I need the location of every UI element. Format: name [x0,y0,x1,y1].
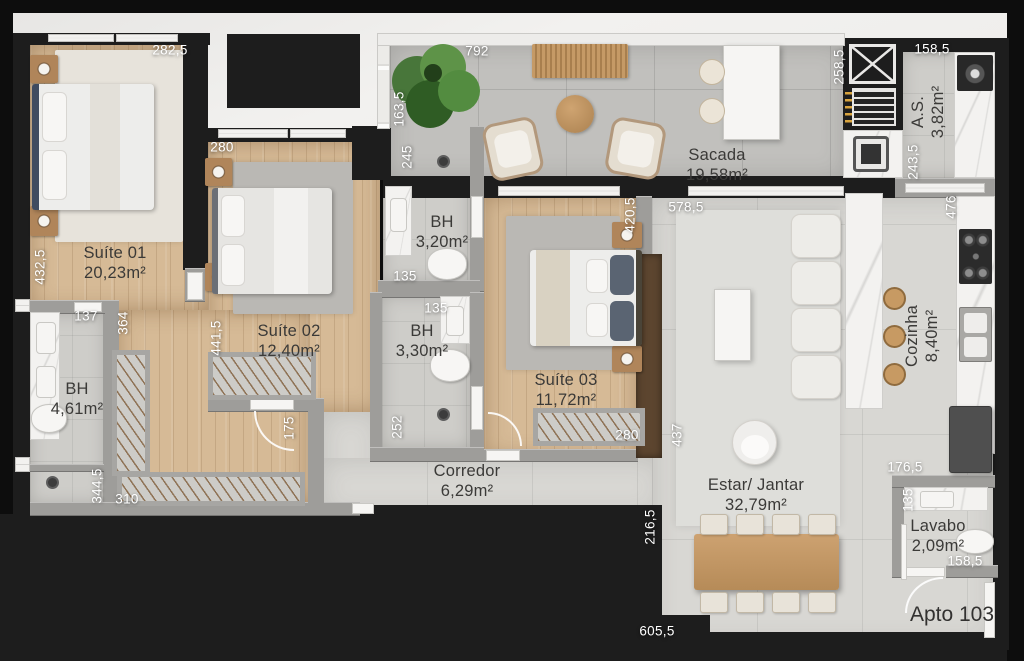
room-name: A.S. [908,86,928,139]
room-label-suite-03: Suíte 03 11,72m² [534,370,597,410]
sofa-cushion [791,308,841,352]
dimension-label: 158,5 [914,42,949,57]
dimension-label: 163,5 [392,91,407,126]
blanket [274,188,308,294]
room-name: BH [416,212,469,232]
sink-icon [446,306,464,336]
dining-chair-icon [772,592,800,613]
wall-corridor-bottom [357,505,634,516]
sofa-cushion [791,214,841,258]
dimension-label: 364 [116,311,131,334]
nightstand-icon [30,206,58,236]
blanket [536,250,570,346]
door-leaf-lavabo [901,524,907,580]
room-name: Corredor [434,461,501,481]
bed-icon-suite01 [32,84,154,210]
bed-icon-suite02 [212,188,332,294]
bed-icon-suite03 [530,250,642,346]
pillow [221,195,245,237]
door-sill-suite01 [187,272,203,300]
nightstand-icon [612,346,642,372]
sofa-icon [791,214,845,404]
fridge-icon [949,406,992,473]
dimension-label: 137 [74,309,97,324]
wall-bottom-right [662,632,1007,661]
chair-seat [741,435,769,459]
room-area: 32,79m² [708,495,804,515]
room-name: Cozinha [902,305,922,367]
dining-chair-icon [700,514,728,535]
balcony-railing-left [377,45,390,129]
nightstand-icon [205,158,232,186]
wall-corridor-left [308,398,324,516]
headboard [636,250,642,346]
grill-icon [852,88,896,126]
pillow [42,150,67,200]
room-area: 3,30m² [396,341,449,361]
armchair-cushion [616,129,655,168]
dimension-label: 135 [393,269,416,284]
toilet-icon [427,248,467,280]
sink-basin [964,313,987,333]
room-name: Suíte 01 [83,243,146,263]
dimension-label: 135 [901,488,916,511]
dimension-label: 243,5 [906,144,921,179]
dining-chair-icon [808,514,836,535]
shower-head-icon [437,408,450,421]
washer-icon [957,55,993,91]
armchair-icon [481,115,546,183]
pillow [221,244,245,286]
dimension-label: 280 [210,140,233,155]
grill-skewers-icon [845,92,852,124]
dimension-label: 258,5 [832,49,847,84]
dimension-label: 216,5 [643,509,658,544]
wardrobe-icon [112,350,150,476]
dimension-label: 578,5 [668,200,703,215]
round-table-icon [556,95,594,133]
room-name: BH [396,321,449,341]
sliding-door-suite03 [498,186,620,196]
wall-right-exterior [993,38,1009,650]
dining-chair-icon [772,514,800,535]
nightstand-icon [30,55,58,83]
dimension-label: 245 [400,145,415,168]
room-label-as: A.S. 3,82m² [908,86,948,139]
dimension-label: 280 [615,428,638,443]
room-area: 3,20m² [416,232,469,252]
door-sill-bh320 [471,196,483,238]
room-name: Sacada [686,145,748,165]
window-suite01-a [48,34,114,42]
bar-sink-icon [853,136,889,172]
wall-bottom-left-mass [0,514,662,661]
wall-bh330-bottom [370,447,484,462]
door-sill-suite02 [250,399,294,410]
dimension-label: 158,5 [947,554,982,569]
window-suite02-a [218,129,288,138]
dining-chair-icon [736,514,764,535]
pillow [586,303,608,337]
dimension-label: 310 [115,492,138,507]
dimension-label: 344,5 [90,468,105,503]
dimension-label: 792 [465,44,488,59]
armchair-cushion [493,129,533,169]
room-area: 20,23m² [83,263,146,283]
room-name: Suíte 03 [534,370,597,390]
room-area: 19,58m² [686,165,748,185]
plant-leaf [424,64,442,82]
pillow [610,255,634,295]
headboard [212,188,218,294]
room-area: 12,40m² [257,341,320,361]
blanket [90,84,120,210]
dimension-label: 176,5 [887,460,922,475]
room-label-sacada: Sacada 19,58m² [686,145,748,185]
coffee-table-icon [714,289,751,361]
window-suite01-b [116,34,178,42]
balcony-counter [723,45,780,140]
room-label-lavabo: Lavabo 2,09m² [910,516,965,556]
room-label-suite-02: Suíte 02 12,40m² [257,321,320,361]
shower-head-icon [437,155,450,168]
room-area: 8,40m² [922,305,942,367]
window-suite02-b [290,129,346,138]
headboard [32,84,39,210]
wall-balcony-left [377,128,391,178]
sink-icon [390,198,407,232]
pillow [586,259,608,293]
lounge-chair-icon [732,420,777,465]
door-sill-bh330 [471,386,483,430]
dining-chair-icon [700,592,728,613]
pillow [610,301,634,341]
room-label-corredor: Corredor 6,29m² [434,461,501,501]
window-kitchen [905,183,985,193]
sofa-cushion [791,355,841,399]
sofa-cushion [791,261,841,305]
sliding-door-living [688,186,844,196]
sink-icon [36,322,56,354]
dimension-label: 441,5 [209,320,224,355]
door-sill-suite03 [486,450,520,461]
dimension-label: 135 [424,301,447,316]
dimension-label: 175 [282,416,297,439]
plant-leaf [438,70,480,112]
room-name: Estar/ Jantar [708,475,804,495]
wardrobe-icon [117,472,305,506]
dimension-label: 252 [390,415,405,438]
elevator-shaft-icon [849,44,896,84]
logo-placeholder [227,34,360,108]
room-label-bh-330: BH 3,30m² [396,321,449,361]
kitchen-island [845,193,883,409]
window-bh461-b [15,457,30,472]
dimension-label: 437 [670,423,685,446]
door-sill-lavabo [903,567,945,577]
room-label-bh-461: BH 4,61m² [51,379,104,419]
sink-basin [964,337,987,357]
sink-icon [920,491,954,508]
kitchen-sink-icon [959,307,992,362]
dimension-label: 605,5 [639,624,674,639]
wall-suite01-suite02 [183,33,208,270]
apartment-number-label: Apto 103 [910,603,994,627]
floor-plan: Suíte 01 20,23m² Suíte 02 12,40m² BH 3,2… [0,0,1024,661]
room-area: 11,72m² [534,390,597,410]
shower-head-icon [46,476,59,489]
wall-bh330-right [470,292,484,462]
room-area: 6,29m² [434,481,501,501]
wall-bh330-left [370,292,382,462]
room-name: Lavabo [910,516,965,536]
room-area: 4,61m² [51,399,104,419]
dimension-label: 476 [944,195,959,218]
pillow [42,92,67,142]
room-label-cozinha: Cozinha 8,40m² [902,305,942,367]
room-area: 3,82m² [928,86,948,139]
room-label-estar-jantar: Estar/ Jantar 32,79m² [708,475,804,515]
dimension-label: 420,5 [623,197,638,232]
dining-chair-icon [736,592,764,613]
armchair-icon [603,116,667,182]
room-label-bh-320: BH 3,20m² [416,212,469,252]
wall-left-exterior [13,33,30,516]
dining-chair-icon [808,592,836,613]
dimension-label: 282,5 [152,43,187,58]
room-name: BH [51,379,104,399]
stool-icon [699,59,725,85]
room-name: Suíte 02 [257,321,320,341]
window-bh461-a [15,299,30,312]
slatted-bench-icon [532,44,628,78]
stool-icon [699,98,725,124]
dimension-label: 432,5 [33,249,48,284]
dining-table-icon [694,534,839,590]
door-sill-corridor [352,503,374,514]
room-label-suite-01: Suíte 01 20,23m² [83,243,146,283]
stove-icon [959,229,992,284]
